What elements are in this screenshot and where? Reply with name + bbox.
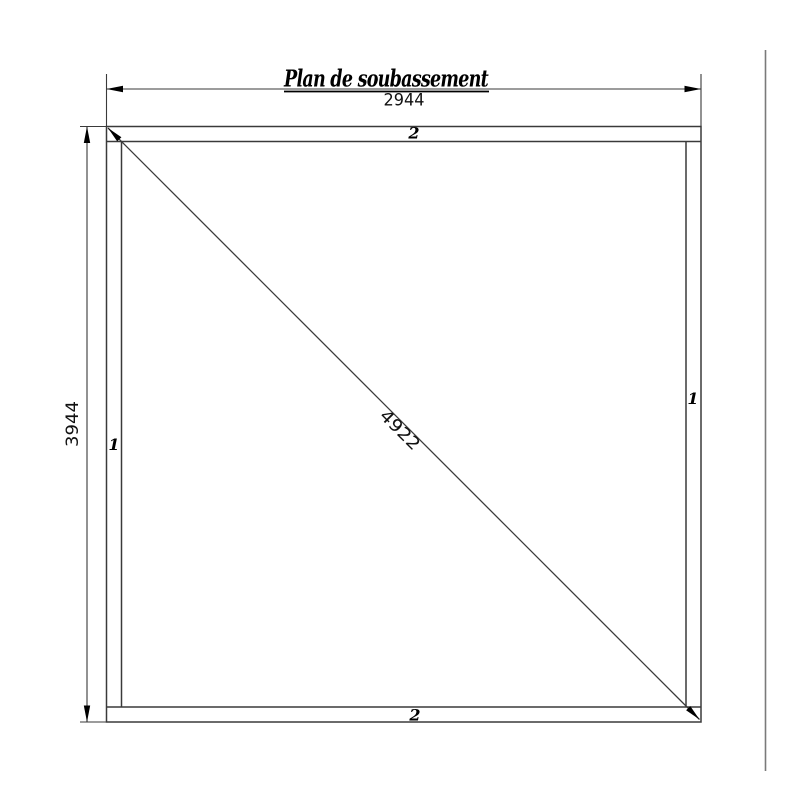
right-stile-label: 1	[687, 389, 698, 408]
width-dimension: Plan de soubassement 2944	[107, 66, 702, 127]
bottom-rail-label: 2	[408, 706, 420, 725]
arrowhead-up-icon	[84, 127, 90, 144]
height-dimension-value: 3944	[63, 401, 83, 447]
cad-canvas: Plan de soubassement 2944 3944	[0, 0, 800, 800]
drawing-sheet: Plan de soubassement 2944 3944	[0, 0, 800, 800]
left-stile-label: 1	[108, 435, 119, 454]
diagonal-dimension-value: 4922	[375, 406, 424, 455]
arrowhead-left-icon	[107, 86, 124, 92]
top-rail-label: 2	[407, 124, 419, 143]
arrowhead-right-icon	[685, 86, 702, 92]
drawing-title: Plan de soubassement	[283, 66, 489, 93]
arrowhead-down-icon	[84, 706, 90, 723]
height-dimension: 3944	[63, 127, 107, 723]
diagonal-dimension: 4922	[108, 128, 700, 720]
width-dimension-value: 2944	[384, 91, 425, 111]
